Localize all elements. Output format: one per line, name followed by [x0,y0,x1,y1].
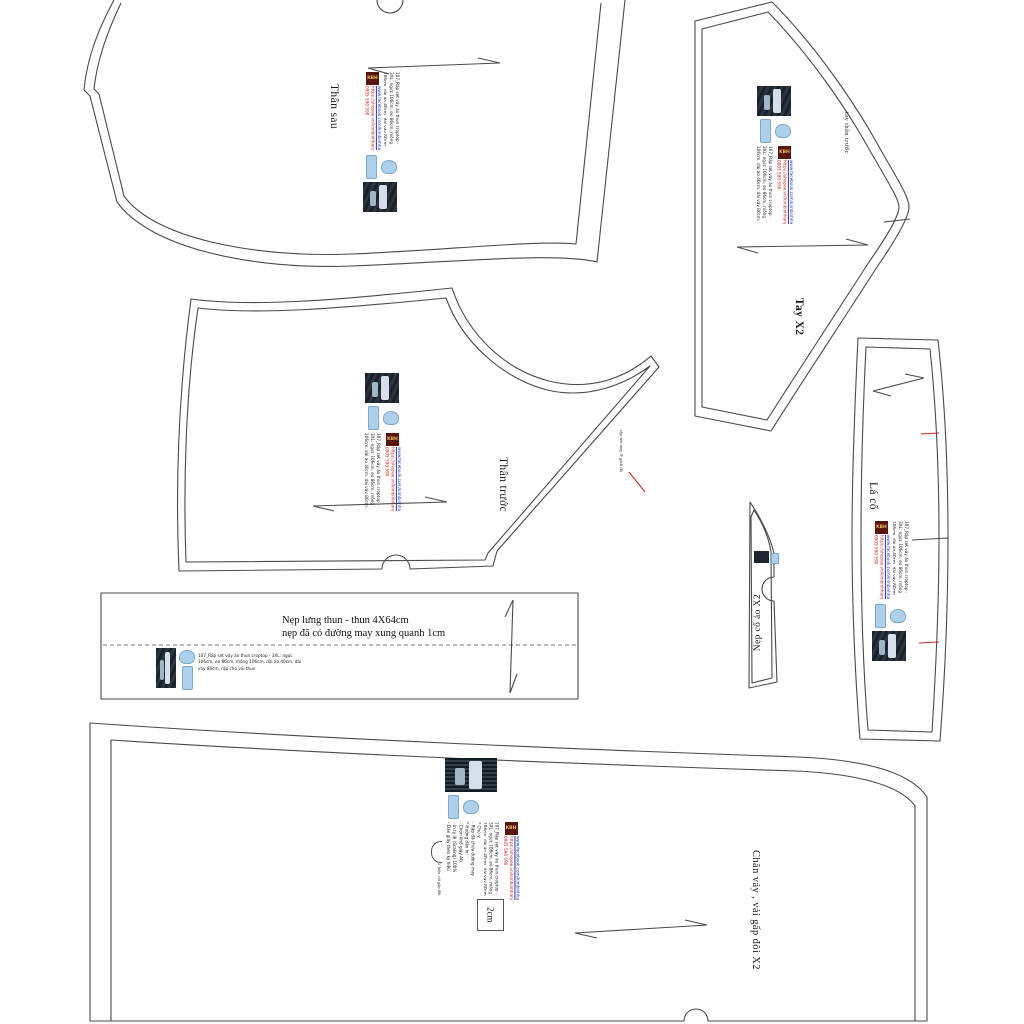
brand-links: www.facebook.com/kimbinhhang https://sho… [872,535,891,599]
kbh-logo: KBH [366,72,379,85]
red-match-marks [919,433,939,643]
facebook-link: www.facebook.com/kimbinhhang [885,535,891,599]
pattern-description: 107_Rập set váy áo thun croptop - 3XL: n… [484,822,500,902]
croptop-icon [383,411,399,425]
brand-block-back-bodice: KBH www.facebook.com/kimbinhhang https:/… [363,72,400,212]
phone-number: 0905 590 590 [502,836,508,900]
model-photo [757,86,791,116]
brand-block-sleeve: 107_Rập set váy áo thun croptop - 3XL: n… [757,86,794,226]
logo-text: KBH [387,437,398,442]
waistband-title: Nẹp lưng thun - thun 4X64cm nẹp đã có đư… [282,615,445,640]
notch-mark [912,538,948,540]
facebook-link: www.facebook.com/kimbinhhang [376,86,382,150]
brand-block-front-bodice: 107_Rập set váy áo thun croptop - 3XL: n… [365,373,402,513]
fold-notch [377,0,403,13]
brand-links: www.facebook.com/kimbinhhang https://sho… [775,160,794,224]
pattern-description: 107_Rập set váy áo thun croptop - 3XL: n… [198,648,306,672]
logo-text: KBH [506,826,517,831]
facebook-link: www.facebook.com/kimbinhhang [788,160,794,224]
garment-icons [757,118,791,144]
grainline-arrow [575,920,707,938]
garment-icon [771,553,779,564]
skirt-icon [182,666,193,690]
skirt-icon [448,795,459,819]
label-back-bodice: Thân sau [328,84,340,129]
kbh-logo: KBH [505,822,518,835]
logo-text: KBH [876,525,887,530]
croptop-icon [463,800,479,814]
label-sleeve-front-edge: tay thân trước [843,112,850,154]
garment-icons [872,603,906,629]
red-match-mark [629,472,645,492]
grainline-arrow [737,239,868,253]
model-photo [365,373,399,403]
facebook-link: www.facebook.com/kimbinhhang [514,836,520,900]
waistband-line1: Nẹp lưng thun - thun 4X64cm [282,615,445,628]
label-fold-symbol-note: Kí hiệu vải gấp đôi [437,861,442,896]
pattern-description: 107_Rập set váy áo thun croptop - 3XL: n… [365,433,381,513]
brand-links: www.facebook.com/kimbinhhang https://sho… [383,447,402,511]
shopee-link: https://shopee.vn/kimbinhhang [389,447,395,511]
garment-icons [445,794,479,820]
facebook-link: www.facebook.com/kimbinhhang [396,447,402,511]
brand-block-waistband: 107_Rập set váy áo thun croptop - 3XL: n… [156,648,306,690]
garment-icons [365,405,399,431]
kbh-logo: KBH [778,146,791,159]
shopee-link: https://shopee.vn/kimbinhhang [508,836,514,900]
sewing-pattern-sheet: Thân sau Tay X2 tay thân trước Thân trướ… [0,0,1024,1024]
label-skirt: Chân váy , vải gấp đôi X2 [750,850,761,970]
kbh-logo: KBH [875,521,888,534]
croptop-icon [775,124,791,138]
label-collar: Lá cổ [867,482,879,510]
model-photo [156,648,176,688]
logo-text: KBH [779,150,790,155]
croptop-icon [381,160,397,174]
waistband-line2: nẹp đã có đường may xung quanh 1cm [282,628,445,641]
logo-text: KBH [367,76,378,81]
brand-links: www.facebook.com/kimbinhhang https://sho… [363,86,382,150]
label-front-bodice: Thân trước [497,457,509,512]
label-bias-seam-note: rập xéo may lề gạch đỏ [619,430,624,472]
cap-notch [884,219,910,222]
fold-symbol-half-circle [431,841,442,863]
model-photo [754,551,769,563]
grainline-arrow [873,374,924,396]
pattern-description: 107_Rập set váy áo thun croptop - 3XL: n… [893,521,909,601]
shopee-link: https://shopee.vn/kimbinhhang [878,535,884,599]
skirt-icon [368,406,379,430]
grainline-arrow [505,600,517,693]
shopee-link: https://shopee.vn/kimbinhhang [369,86,375,150]
croptop-icon [890,609,906,623]
skirt-icon [366,155,377,179]
garment-icons [179,648,195,690]
piece-back-bodice-outline [84,0,625,266]
piece-sleeve-outline [695,2,910,431]
piece-front-bodice-outline [178,288,660,571]
scale-check-box: 2cm [477,899,504,931]
pattern-description: 107_Rập set váy áo thun croptop - 3XL: n… [757,146,773,226]
skirt-icon [760,119,771,143]
pattern-description: 107_Rập set váy áo thun croptop - 3XL: n… [384,72,400,152]
kbh-logo: KBH [386,433,399,446]
brand-block-collar: KBH www.facebook.com/kimbinhhang https:/… [872,521,909,661]
garment-icons [363,154,397,180]
brand-links: www.facebook.com/kimbinhhang https://sho… [502,836,521,900]
model-photo [445,758,497,792]
label-neck-facing: Nẹp cổ áo X2 [753,594,763,651]
model-photo [872,631,906,661]
label-sleeve: Tay X2 [793,298,805,335]
model-photo [363,182,397,212]
shopee-link: https://shopee.vn/kimbinhhang [781,160,787,224]
croptop-icon [179,650,195,664]
skirt-icon [875,604,886,628]
